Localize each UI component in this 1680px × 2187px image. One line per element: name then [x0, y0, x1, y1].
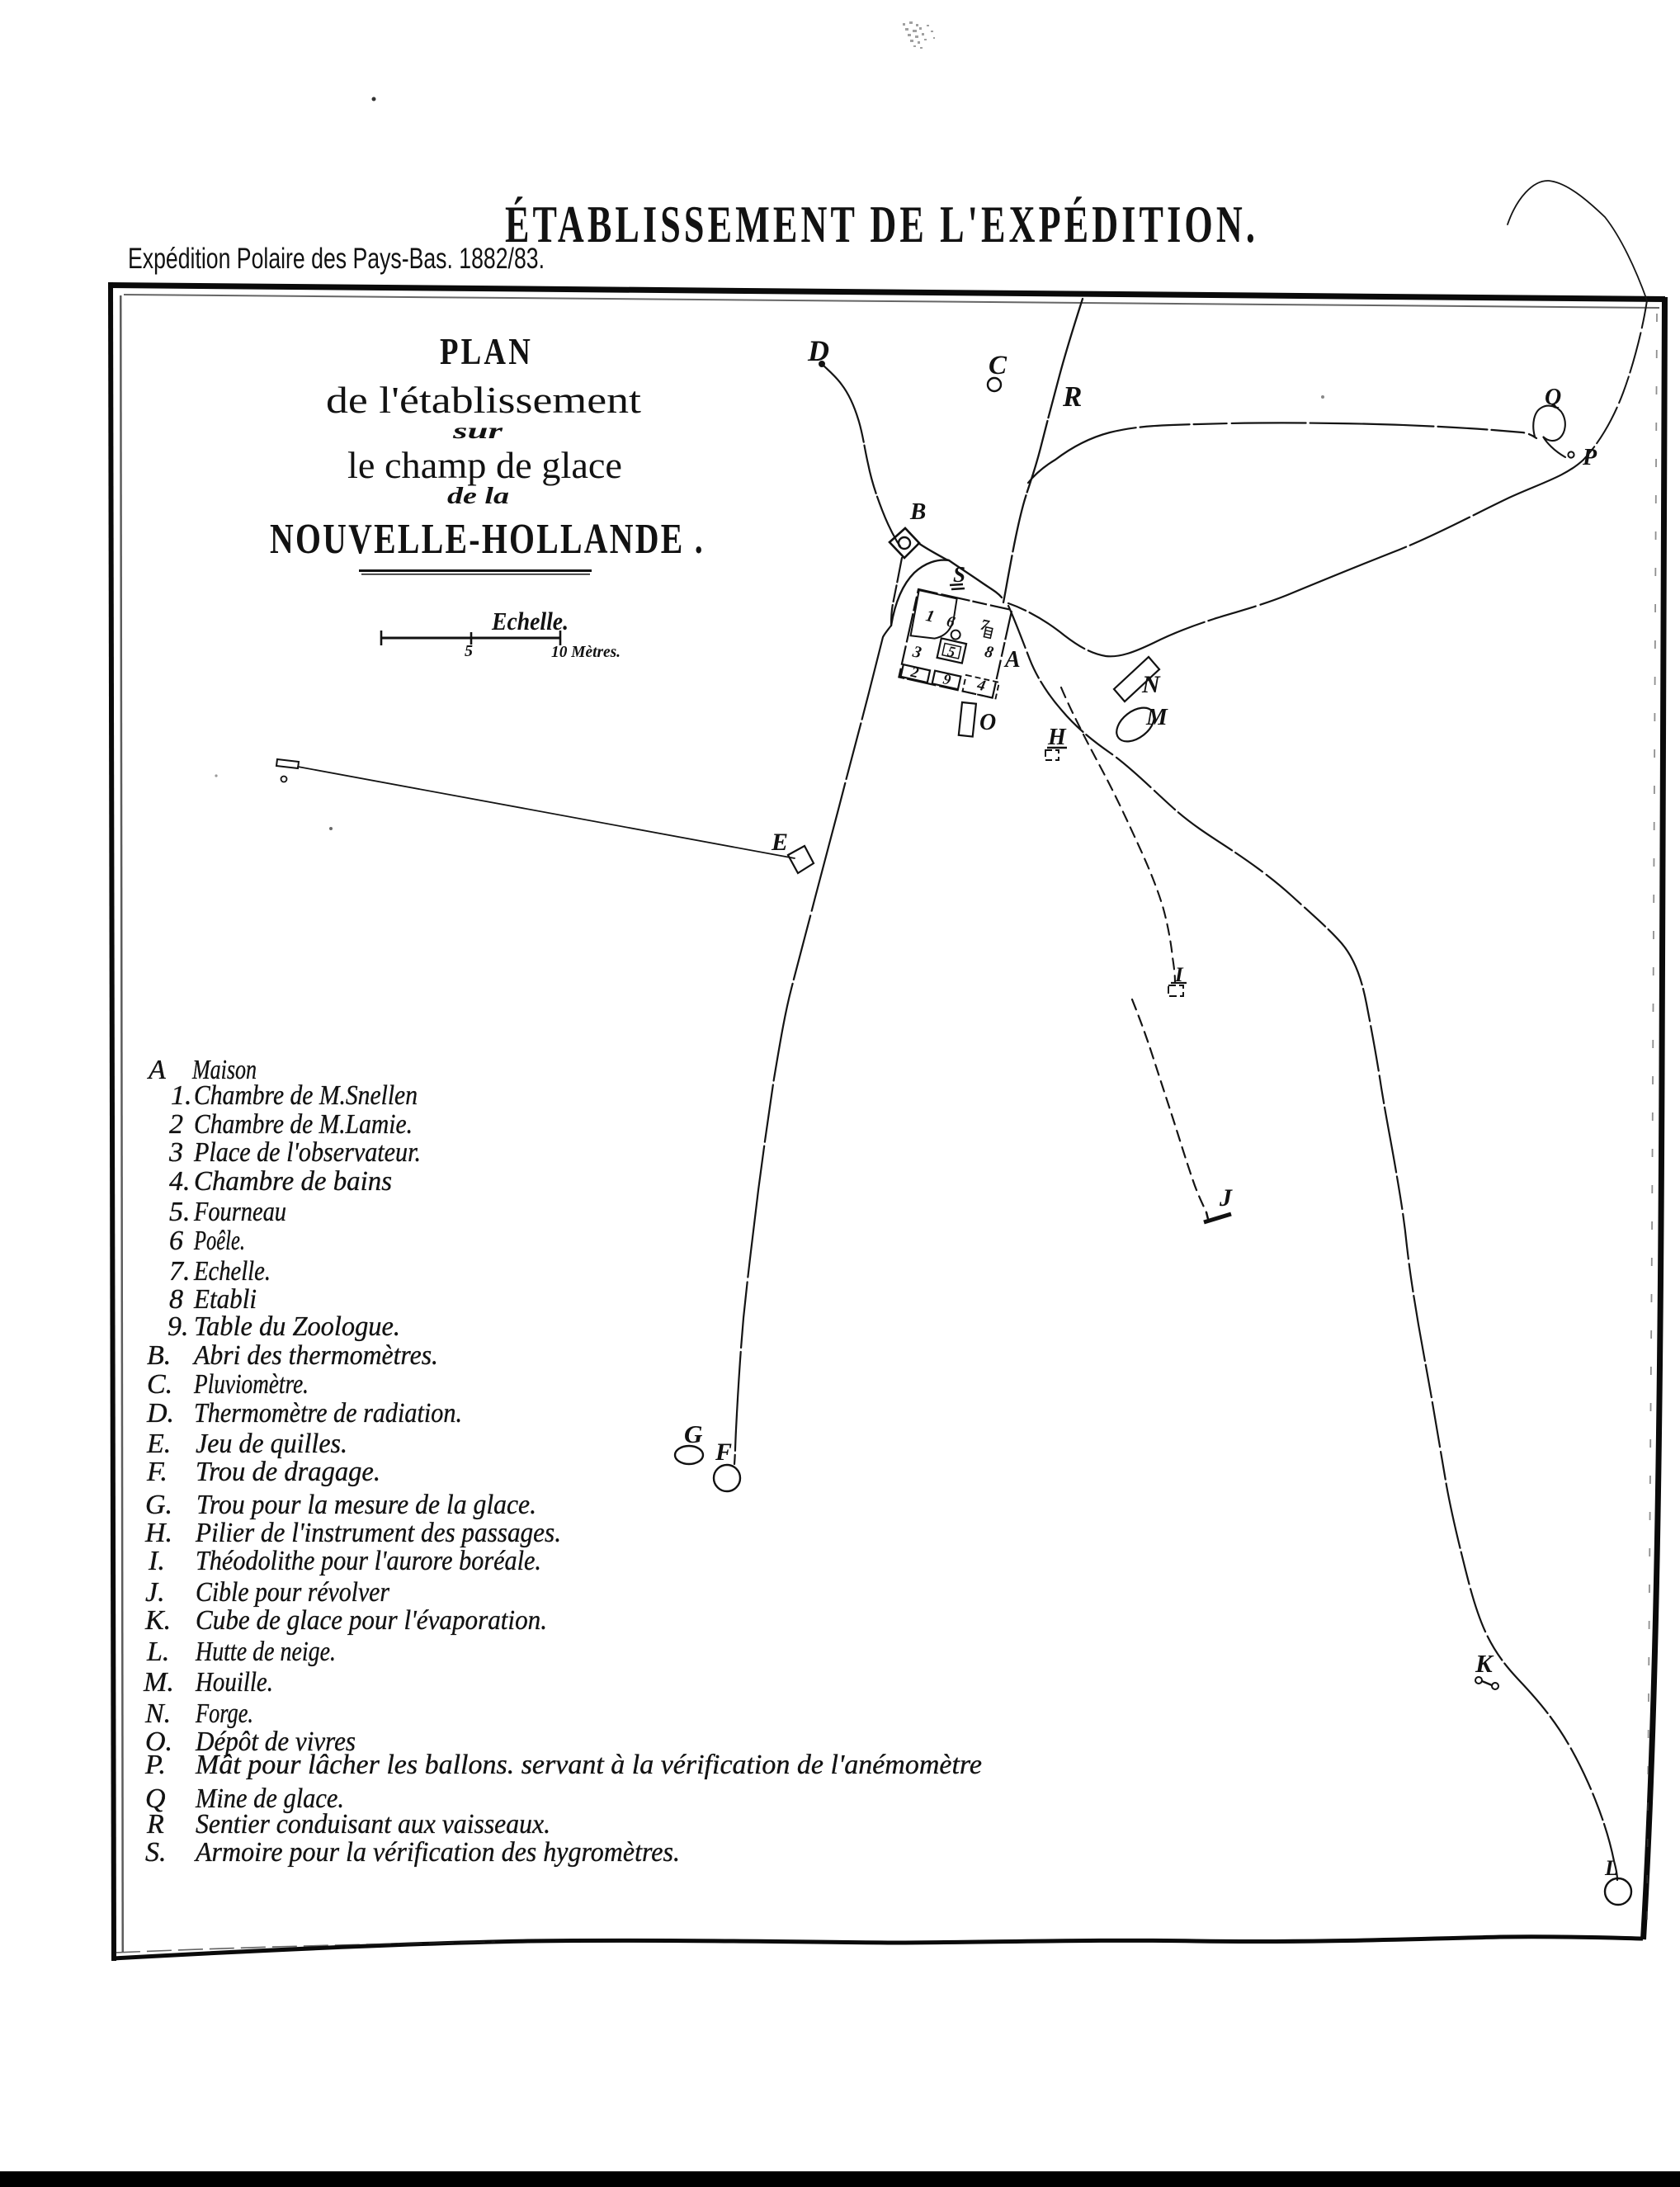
svg-text:8: 8: [169, 1284, 183, 1315]
svg-text:de l'établissement: de l'établissement: [326, 380, 642, 421]
svg-text:Jeu de quilles.: Jeu de quilles.: [196, 1429, 347, 1459]
svg-text:Fourneau: Fourneau: [193, 1197, 286, 1227]
svg-text:Pilier de l'instrument des pas: Pilier de l'instrument des passages.: [195, 1518, 561, 1548]
svg-text:5: 5: [465, 642, 473, 660]
svg-text:D: D: [807, 334, 829, 367]
svg-text:7.: 7.: [169, 1256, 191, 1287]
svg-text:Table du Zoologue.: Table du Zoologue.: [194, 1311, 400, 1342]
svg-text:Trou pour la mesure de la glac: Trou pour la mesure de la glace.: [196, 1490, 536, 1520]
svg-text:K: K: [1475, 1649, 1494, 1678]
svg-text:M.: M.: [143, 1667, 174, 1698]
svg-text:A: A: [1003, 647, 1021, 673]
svg-text:Thermomètre de radiation.: Thermomètre de radiation.: [194, 1398, 462, 1429]
svg-text:J: J: [1219, 1184, 1233, 1212]
svg-text:9.: 9.: [168, 1311, 189, 1342]
svg-text:Q: Q: [1545, 385, 1561, 410]
svg-text:K.: K.: [144, 1605, 171, 1636]
svg-text:Cube de glace pour l'évaporati: Cube de glace pour l'évaporation.: [196, 1605, 547, 1636]
svg-text:Poêle.: Poêle.: [193, 1226, 245, 1256]
svg-text:L: L: [1604, 1856, 1618, 1880]
svg-text:Echelle.: Echelle.: [491, 607, 569, 635]
svg-text:N.: N.: [144, 1698, 171, 1729]
svg-text:Place de l'observateur.: Place de l'observateur.: [193, 1137, 421, 1168]
svg-text:F: F: [715, 1438, 732, 1466]
svg-text:Abri des thermomètres.: Abri des thermomètres.: [192, 1340, 438, 1371]
svg-text:H.: H.: [144, 1518, 172, 1548]
svg-text:G.: G.: [145, 1490, 172, 1520]
svg-text:sur: sur: [451, 418, 503, 443]
svg-text:A: A: [147, 1055, 166, 1085]
svg-text:Etabli: Etabli: [193, 1284, 257, 1315]
svg-text:PLAN: PLAN: [440, 330, 533, 372]
svg-text:H: H: [1047, 725, 1067, 750]
svg-text:de la: de la: [447, 483, 509, 509]
svg-text:Hutte de neige.: Hutte de neige.: [195, 1637, 336, 1667]
svg-text:NOUVELLE-HOLLANDE .: NOUVELLE-HOLLANDE .: [270, 516, 705, 563]
svg-text:Echelle.: Echelle.: [193, 1256, 271, 1287]
svg-text:F.: F.: [146, 1457, 168, 1487]
svg-text:B.: B.: [147, 1340, 171, 1371]
svg-text:Mât pour lâcher les ballons. s: Mât pour lâcher les ballons. servant à l…: [195, 1750, 982, 1780]
svg-text:B: B: [909, 498, 926, 525]
svg-text:P: P: [1582, 445, 1597, 470]
svg-text:L.: L.: [146, 1637, 169, 1667]
svg-text:N: N: [1141, 671, 1161, 698]
svg-text:Chambre de M.Snellen: Chambre de M.Snellen: [194, 1080, 418, 1111]
svg-text:E.: E.: [146, 1429, 171, 1459]
svg-text:3: 3: [168, 1137, 183, 1168]
svg-text:Pluviomètre.: Pluviomètre.: [193, 1369, 309, 1400]
svg-text:Forge.: Forge.: [195, 1698, 253, 1729]
svg-text:10 Mètres.: 10 Mètres.: [551, 643, 621, 661]
svg-text:le champ de glace: le champ de glace: [347, 445, 622, 486]
svg-text:Sentier conduisant aux vaissea: Sentier conduisant aux vaisseaux.: [196, 1809, 550, 1840]
svg-text:R: R: [1062, 380, 1082, 413]
svg-text:P.: P.: [144, 1750, 166, 1780]
svg-text:R: R: [146, 1809, 164, 1840]
svg-text:Trou de dragage.: Trou de dragage.: [196, 1457, 380, 1487]
svg-text:G: G: [684, 1419, 703, 1448]
svg-text:O: O: [979, 710, 996, 735]
svg-text:5.: 5.: [169, 1197, 191, 1227]
svg-text:J.: J.: [145, 1577, 165, 1608]
svg-text:6: 6: [169, 1226, 183, 1256]
svg-text:M: M: [1145, 704, 1168, 730]
svg-text:I.: I.: [148, 1546, 165, 1576]
svg-text:Armoire pour la vérification d: Armoire pour la vérification des hygromè…: [194, 1837, 680, 1868]
svg-text:Chambre de M.Lamie.: Chambre de M.Lamie.: [194, 1109, 413, 1140]
svg-text:Théodolithe pour l'aurore boré: Théodolithe pour l'aurore boréale.: [196, 1546, 541, 1576]
svg-text:E: E: [771, 829, 788, 856]
svg-text:D.: D.: [146, 1398, 174, 1429]
svg-text:Cible pour révolver: Cible pour révolver: [196, 1577, 390, 1608]
svg-text:C.: C.: [147, 1369, 172, 1400]
svg-text:4.: 4.: [169, 1166, 191, 1197]
svg-text:Chambre de bains: Chambre de bains: [194, 1166, 392, 1197]
svg-text:C: C: [989, 351, 1008, 380]
svg-text:2: 2: [169, 1109, 183, 1140]
svg-text:ÉTABLISSEMENT DE L'EXPÉDITION.: ÉTABLISSEMENT DE L'EXPÉDITION.: [505, 195, 1258, 253]
svg-text:1.: 1.: [171, 1080, 192, 1111]
svg-text:S.: S.: [145, 1837, 167, 1868]
svg-text:Expédition Polaire des Pays-Ba: Expédition Polaire des Pays-Bas. 1882/83…: [128, 243, 545, 275]
svg-text:S: S: [953, 562, 965, 587]
svg-text:Houille.: Houille.: [195, 1667, 273, 1698]
